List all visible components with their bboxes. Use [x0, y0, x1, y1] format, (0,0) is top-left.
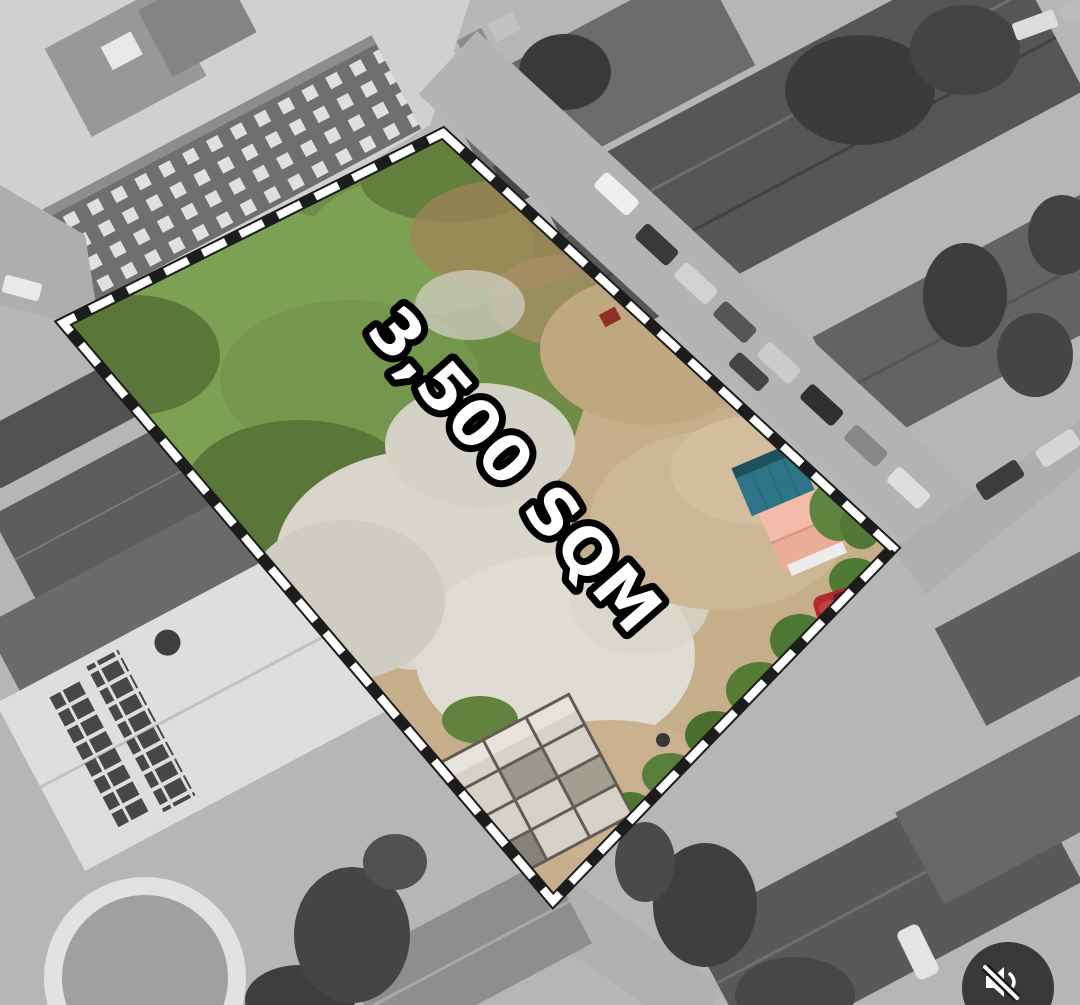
- aerial-photo: 3,500 SQM: [0, 0, 1080, 1005]
- tree: [997, 313, 1073, 397]
- tire: [656, 733, 670, 747]
- tree: [363, 834, 427, 890]
- video-frame: 3,500 SQM: [0, 0, 1080, 1005]
- tree: [910, 5, 1020, 95]
- tree: [923, 243, 1007, 347]
- pool: [53, 886, 237, 1005]
